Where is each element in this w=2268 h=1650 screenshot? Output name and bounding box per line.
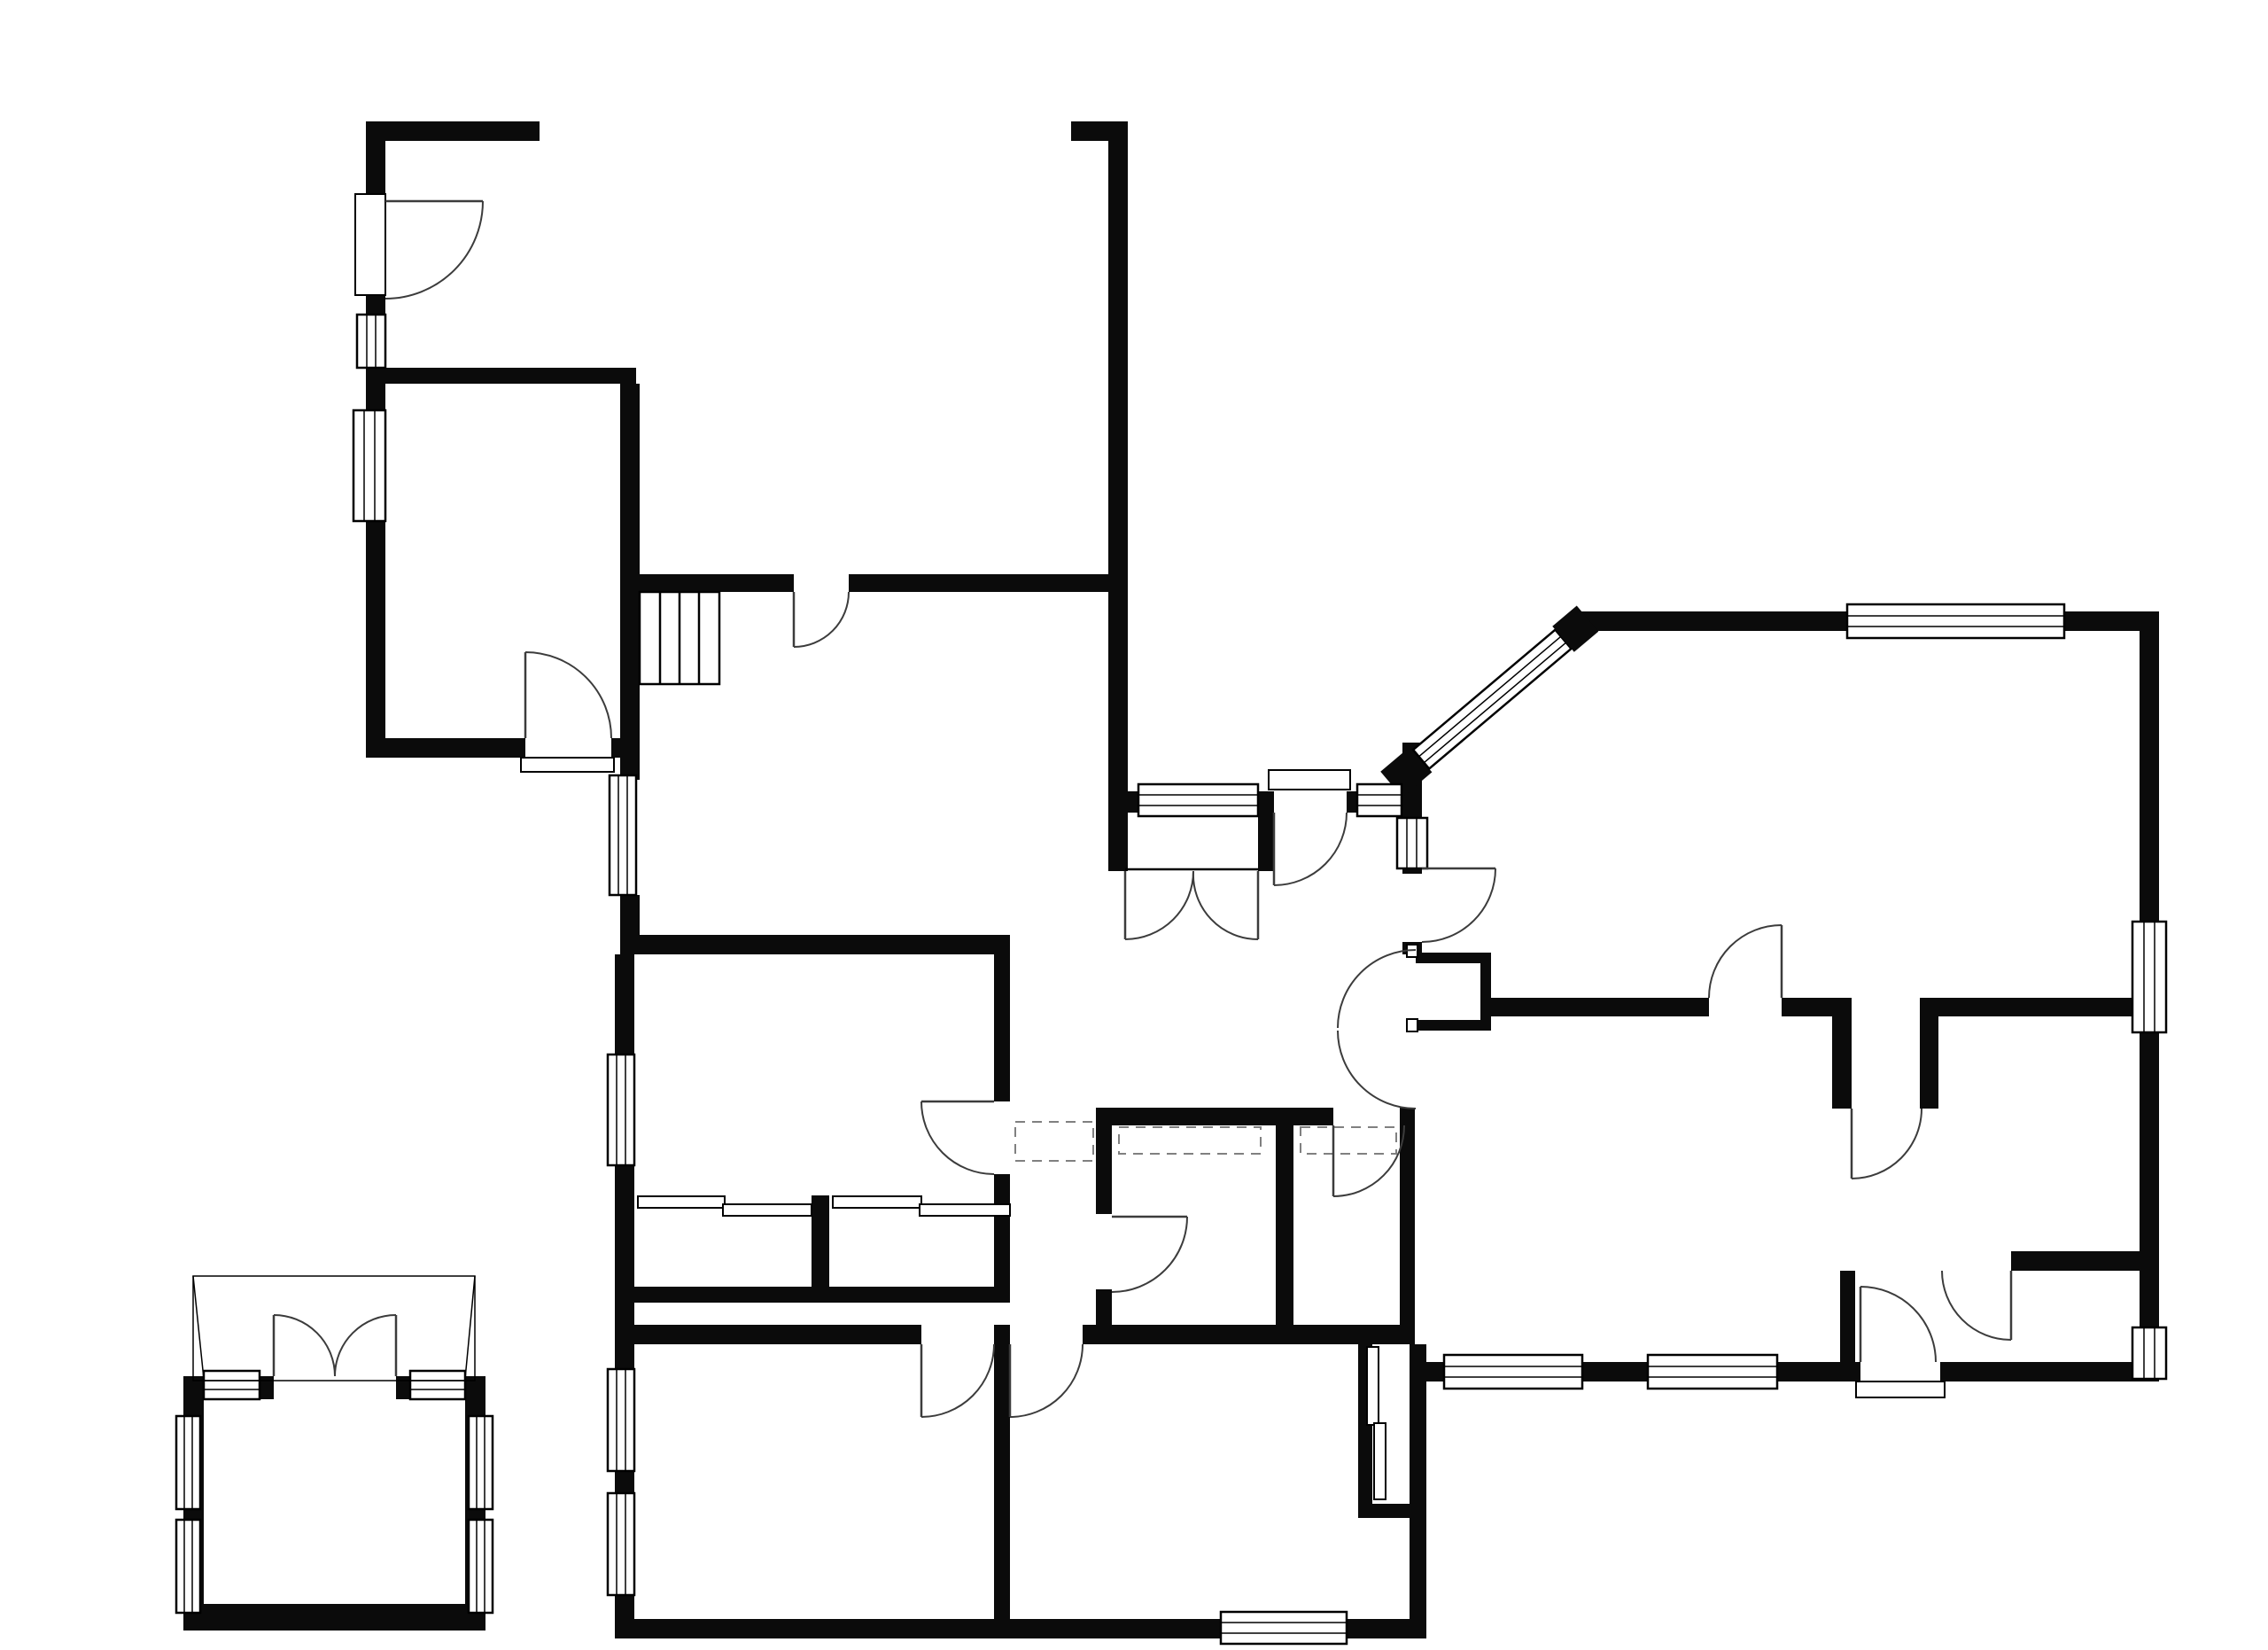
wardrobe1-sliding-doors [638, 1196, 812, 1216]
bedroom1-door [921, 1344, 994, 1417]
bedroom3-door [921, 1101, 994, 1174]
bedroom3-window [608, 1055, 634, 1165]
cabin-right-window-lower [469, 1520, 493, 1613]
floor-plan-drawing [0, 0, 2268, 1650]
utility-door [1852, 1109, 1922, 1179]
kitchen-window-left [1444, 1355, 1582, 1389]
garage-inner-door [794, 592, 849, 647]
hall-front-window [1357, 784, 1402, 816]
office-door [525, 652, 611, 738]
shower-room-door [1333, 1125, 1404, 1196]
cabin-right-window-upper [469, 1416, 493, 1509]
office-door-step [521, 758, 614, 772]
closet2-door [1338, 950, 1416, 1028]
bedroom2-window [1221, 1612, 1347, 1644]
wc-window [2132, 1327, 2166, 1379]
workshop-door [385, 201, 483, 299]
corridor-cupboard-dashed [1015, 1122, 1093, 1161]
hall-closet-doors [1125, 871, 1258, 939]
back-door [1860, 1287, 1936, 1362]
cabin-front-window-left [204, 1371, 260, 1399]
floor-plan-page [0, 0, 2268, 1650]
hall-kitchen-door-upper [1422, 868, 1495, 942]
cabin-left-window-upper [176, 1416, 200, 1509]
workshop-window [357, 315, 385, 368]
shower-tray-dashed [1301, 1127, 1396, 1154]
hall-closet-window [1138, 784, 1258, 816]
lounge-top-window [1847, 604, 2064, 638]
stairs [640, 592, 719, 684]
back-door-step [1856, 1381, 1945, 1397]
lounge-east-window [2132, 922, 2166, 1032]
bathroom-door [1112, 1217, 1187, 1292]
cabin-front-window-right [410, 1371, 465, 1399]
front-door [1274, 813, 1347, 885]
bedroom1-window-upper [608, 1369, 634, 1471]
wc-door [1942, 1271, 2011, 1340]
kitchen-window-right [1648, 1355, 1777, 1389]
front-door-step [1269, 770, 1350, 790]
windows [176, 315, 2166, 1644]
cabin-double-doors [274, 1315, 396, 1376]
hall-side-window [1397, 818, 1427, 868]
fixtures [193, 194, 1945, 1499]
walls [183, 121, 2159, 1638]
bath-tub-dashed [1119, 1127, 1261, 1154]
workshop-door-frame [355, 194, 385, 295]
office-window [353, 410, 385, 521]
wardrobe2-sliding-doors [833, 1196, 1010, 1216]
bedroom1-window-lower [608, 1493, 634, 1595]
lounge-diagonal-bay [1380, 606, 1598, 798]
bedroom2-door [1010, 1344, 1083, 1417]
cabin-left-window-lower [176, 1520, 200, 1613]
closet2-jamb-bottom [1407, 1019, 1417, 1031]
hall-kitchen-door-lower [1338, 1031, 1416, 1109]
dining-room-window [610, 775, 636, 895]
kitchen-lounge-door [1709, 925, 1782, 998]
